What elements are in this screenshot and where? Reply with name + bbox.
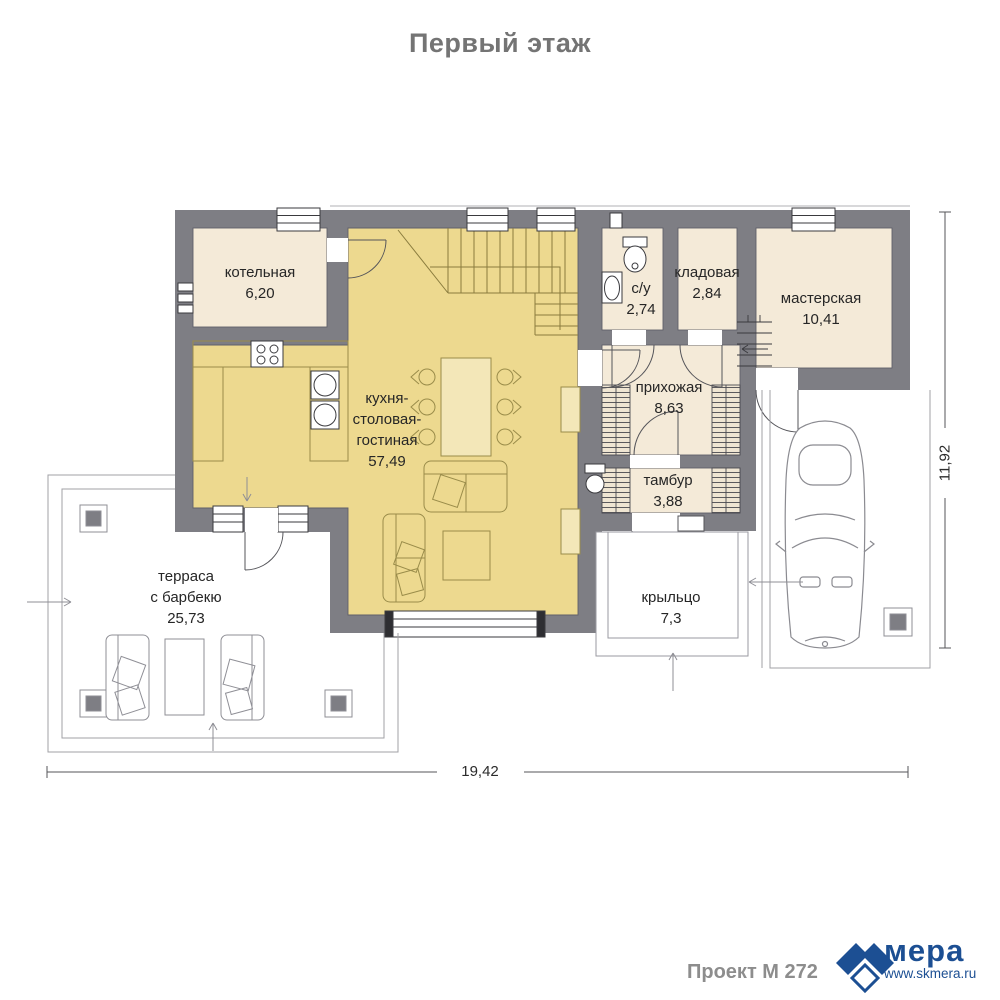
- terrace-table: [165, 639, 204, 715]
- room-label-workshop: мастерская10,41: [781, 288, 861, 330]
- toilet: [623, 237, 647, 272]
- dimension-height: 11,92: [937, 439, 954, 487]
- room-label-storage: кладовая2,84: [674, 262, 739, 304]
- sink: [602, 272, 622, 303]
- entrance-step: [678, 516, 704, 531]
- boiler-vent: [178, 283, 193, 313]
- room-label-porch: крыльцо7,3: [641, 587, 700, 629]
- room-label-terrace: террасас барбекю 25,73: [150, 566, 221, 629]
- cabinet: [561, 509, 580, 554]
- page-title: Первый этаж: [0, 28, 1000, 59]
- brand-website[interactable]: www.skmera.ru: [884, 966, 976, 982]
- terrace-furniture: [106, 635, 264, 720]
- floor-plan-drawing: [0, 0, 1000, 1000]
- car: [776, 421, 874, 648]
- room-label-hallway: прихожая8,63: [636, 377, 703, 419]
- parking-post: [884, 608, 912, 636]
- vent-window: [610, 213, 622, 228]
- project-number: Проект М 272: [687, 961, 818, 984]
- stove: [251, 341, 283, 367]
- cabinet: [561, 387, 580, 432]
- room-label-kitchen: кухня-столовая- гостиная57,49: [353, 388, 422, 472]
- floor-plan-page: Первый этаж котельная6,20 кухня-столовая…: [0, 0, 1000, 1000]
- room-label-vestibule: тамбур3,88: [643, 470, 692, 512]
- brand-name: мера: [884, 936, 976, 966]
- room-label-boiler: котельная6,20: [225, 262, 296, 304]
- brand-block: мера www.skmera.ru: [884, 936, 976, 982]
- panoramic-window: [385, 611, 545, 637]
- room-label-bathroom: с/у2,74: [626, 278, 655, 320]
- dimension-width: 19,42: [455, 763, 505, 780]
- wall-boiler-unit: [585, 464, 605, 493]
